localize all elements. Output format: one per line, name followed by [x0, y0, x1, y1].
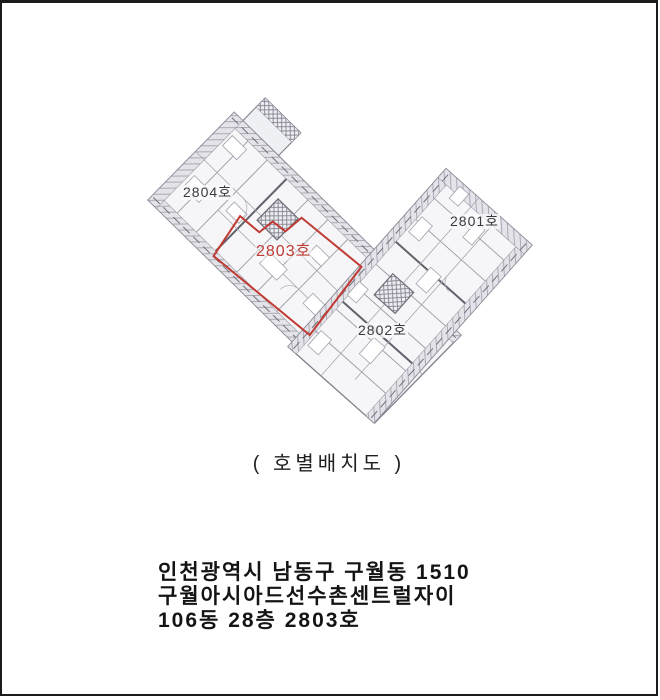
address-line-3: 106동 28층 2803호 [158, 609, 471, 633]
address-line-1: 인천광역시 남동구 구월동 1510 [158, 561, 471, 585]
unit-label-2801: 2801호 [449, 214, 500, 229]
address-line-2: 구월아시아드선수촌센트럴자이 [158, 585, 471, 609]
unit-label-2804: 2804호 [182, 185, 233, 200]
plan-caption: ( 호별배치도 ) [0, 447, 658, 476]
floorplan-document-page: 2804호 2801호 2803호 2802호 ( 호별배치도 ) 인천광역시 … [0, 0, 660, 700]
address-block: 인천광역시 남동구 구월동 1510 구월아시아드선수촌센트럴자이 106동 2… [158, 561, 471, 633]
unit-label-2803: 2803호 [255, 244, 312, 261]
unit-label-2802: 2802호 [357, 323, 408, 338]
